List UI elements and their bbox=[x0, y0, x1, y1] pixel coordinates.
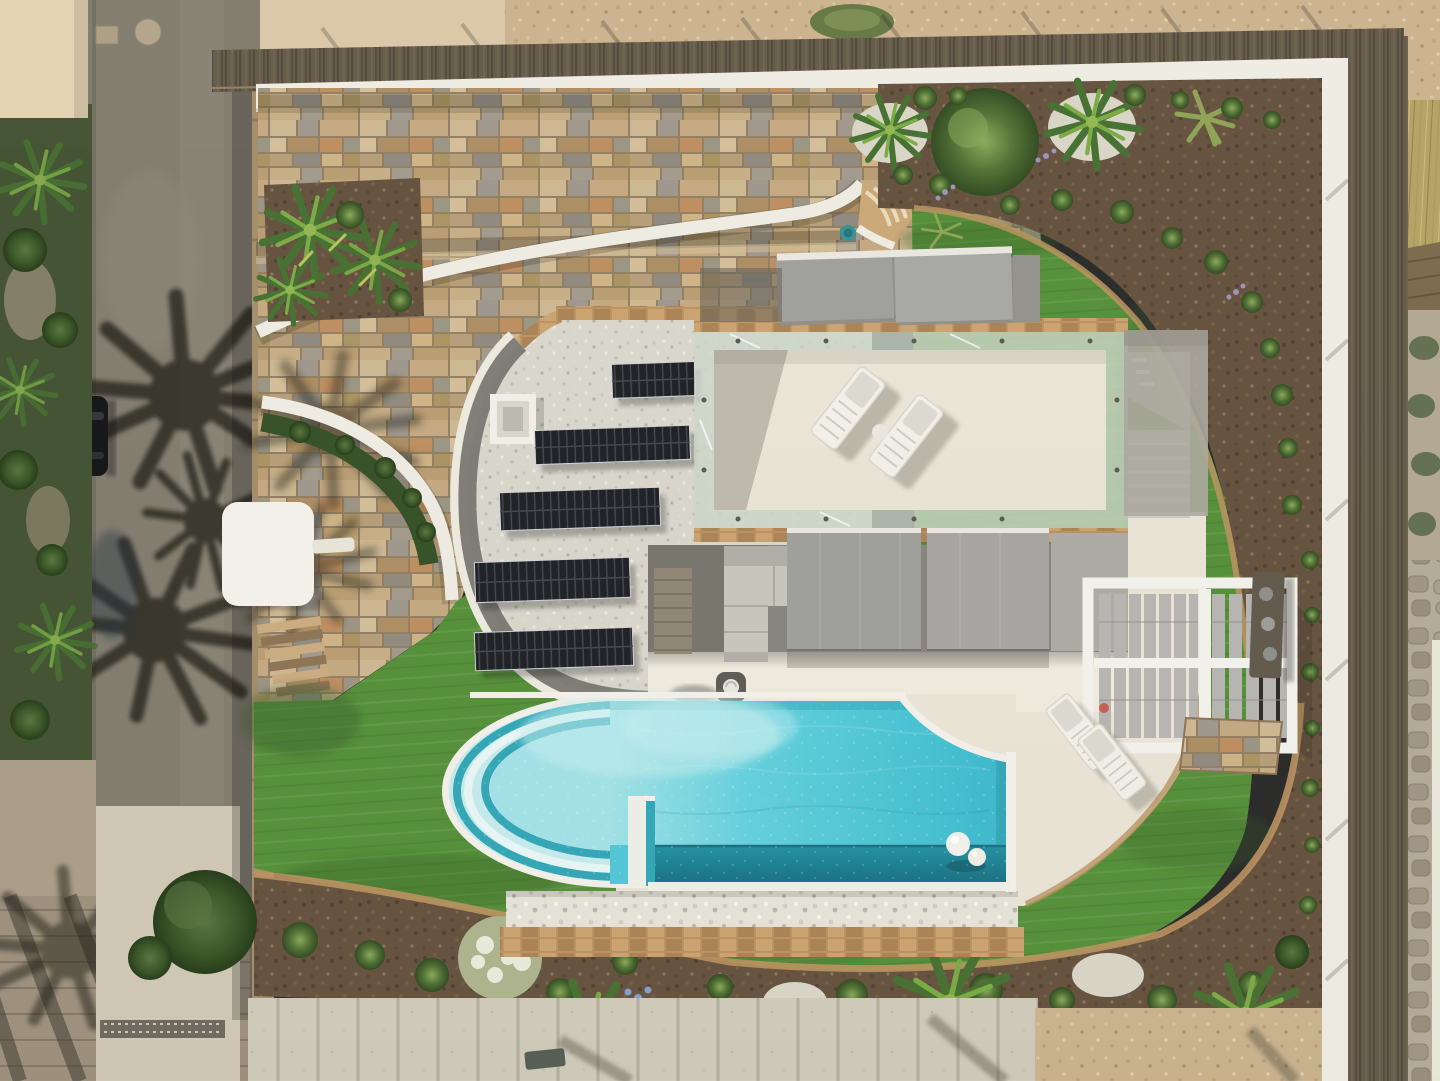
villa-aerial-photo bbox=[0, 0, 1440, 1081]
aerial-photo-stage bbox=[0, 0, 1440, 1081]
